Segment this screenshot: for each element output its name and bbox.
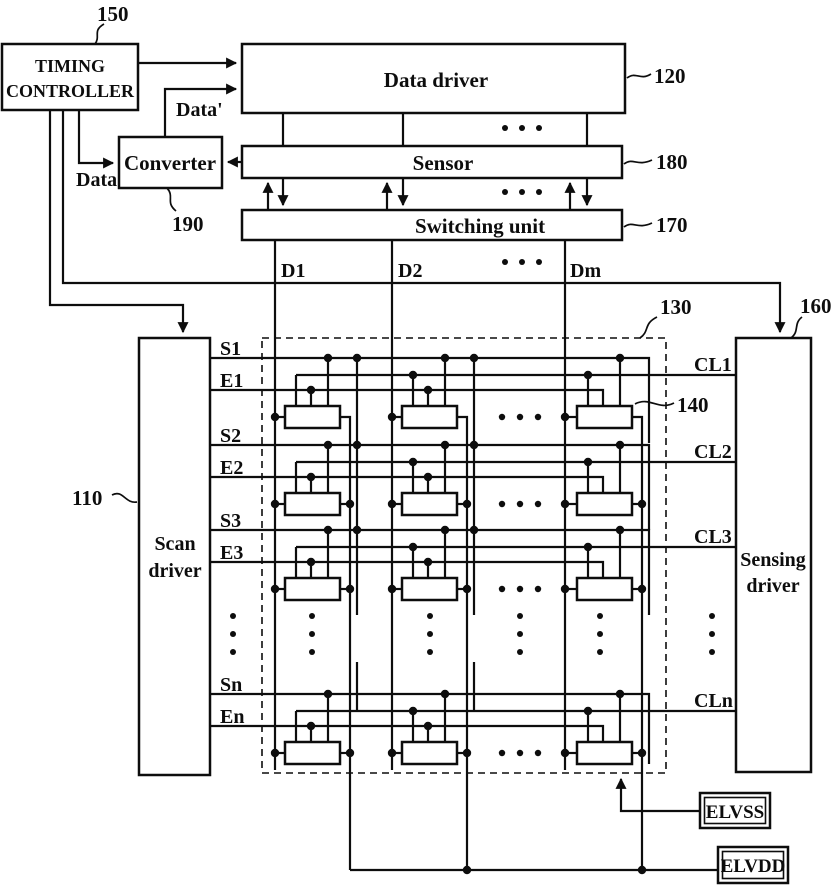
pixel-array-outline [262, 338, 666, 773]
leader-170 [624, 223, 652, 227]
label-data: Data [76, 169, 117, 191]
scan-driver-label-line1: Scan [154, 533, 195, 555]
sensor-label: Sensor [413, 151, 474, 175]
ref-140: 140 [677, 393, 709, 417]
label-data-prime: Data' [176, 99, 223, 121]
leader-140 [635, 402, 674, 406]
label-d2: D2 [398, 260, 422, 282]
label-d1: D1 [281, 260, 305, 282]
sensing-driver-label-line1: Sensing [740, 549, 806, 571]
label-cl3: CL3 [694, 526, 732, 548]
label-s2: S2 [220, 425, 241, 447]
leader-130 [640, 317, 657, 338]
label-cl2: CL2 [694, 441, 732, 463]
pixel-cell [577, 493, 632, 515]
pixel-array [210, 354, 736, 870]
pixel-cell [285, 406, 340, 428]
leader-180 [624, 160, 652, 164]
pixel-cell [402, 406, 457, 428]
leader-120 [627, 74, 651, 78]
leader-150 [95, 24, 104, 44]
label-cln: CLn [694, 690, 733, 712]
leader-160 [791, 317, 802, 338]
leader-190 [167, 188, 176, 211]
switching-unit-label: Switching unit [415, 214, 545, 238]
elvss-label: ELVSS [706, 802, 764, 823]
ref-180: 180 [656, 150, 688, 174]
label-e1: E1 [220, 370, 243, 392]
ref-150: 150 [97, 2, 129, 26]
timing-controller-label-line1: TIMING [35, 56, 105, 76]
ref-160: 160 [800, 294, 831, 318]
label-s3: S3 [220, 510, 241, 532]
ref-170: 170 [656, 213, 688, 237]
label-sn: Sn [220, 674, 242, 696]
ref-120: 120 [654, 64, 686, 88]
label-e3: E3 [220, 542, 243, 564]
ref-110: 110 [72, 486, 102, 510]
pixel-cell [402, 578, 457, 600]
pixel-cell [577, 406, 632, 428]
label-en: En [220, 706, 244, 728]
elvss-rail [621, 779, 700, 811]
pixel-cell [285, 493, 340, 515]
scan-driver-box [139, 338, 210, 775]
label-s1: S1 [220, 338, 241, 360]
label-cl1: CL1 [694, 354, 732, 376]
pixel-cell [577, 742, 632, 764]
timing-controller-label-line2: CONTROLLER [6, 81, 135, 101]
wire-tc-to-converter [79, 110, 113, 163]
leader-110 [112, 494, 137, 503]
pixel-cell [402, 493, 457, 515]
converter-label: Converter [124, 151, 216, 175]
elvdd-label: ELVDD [721, 856, 786, 877]
scan-driver-label-line2: driver [148, 560, 201, 582]
pixel-cell [285, 742, 340, 764]
circuit-diagram: TIMING CONTROLLER Data driver Converter … [0, 0, 831, 887]
pixel-cell [577, 578, 632, 600]
ref-190: 190 [172, 212, 204, 236]
pixel-cell [285, 578, 340, 600]
label-e2: E2 [220, 457, 243, 479]
sensing-driver-label-line2: driver [746, 575, 799, 597]
label-dm: Dm [570, 260, 601, 282]
data-driver-label: Data driver [384, 68, 488, 92]
pixel-cell [402, 742, 457, 764]
patent-figure: TIMING CONTROLLER Data driver Converter … [0, 0, 831, 887]
ref-130: 130 [660, 295, 692, 319]
